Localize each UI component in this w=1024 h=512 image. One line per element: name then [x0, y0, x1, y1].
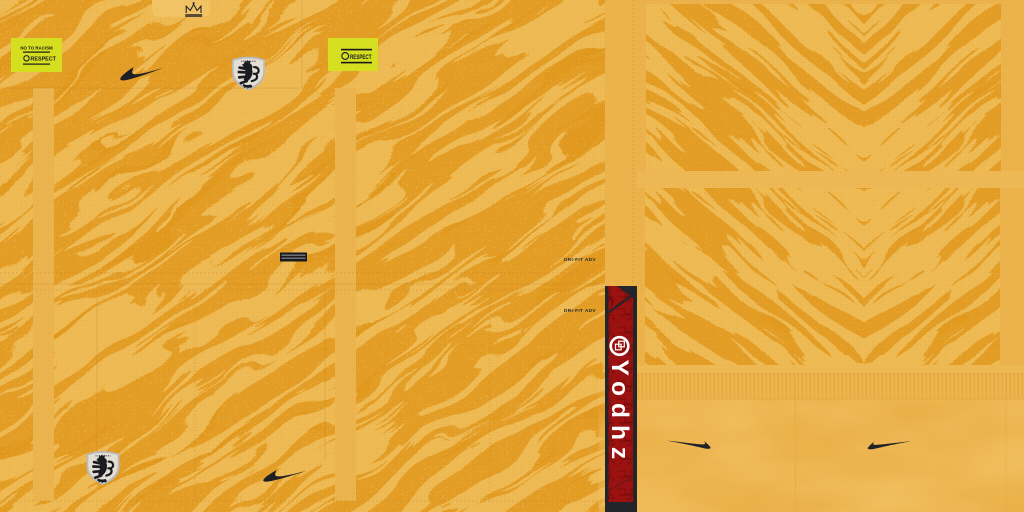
svg-text:DRI-FIT ADV: DRI-FIT ADV — [564, 308, 597, 314]
svg-text:Yodhz: Yodhz — [606, 360, 633, 467]
svg-text:DRI-FIT ADV: DRI-FIT ADV — [564, 257, 597, 263]
svg-text:RESPECT: RESPECT — [31, 57, 57, 63]
svg-text:NO TO RACISM: NO TO RACISM — [20, 46, 53, 51]
svg-text:RESPECT: RESPECT — [350, 54, 372, 61]
